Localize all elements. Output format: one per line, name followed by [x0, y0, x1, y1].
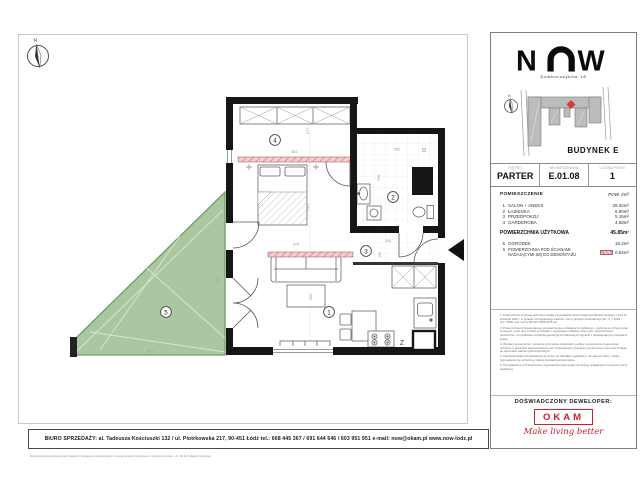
kitchen-z-label: Z [400, 340, 405, 347]
info-col-floor: PIĘTRO PARTER [491, 164, 539, 186]
garden-french-door [233, 278, 258, 328]
kitchen-cabinet [392, 266, 436, 288]
radiator [280, 341, 330, 347]
badge-ogrodek: 5 [164, 309, 168, 316]
floor-plan: N 497 554 [0, 0, 490, 480]
legal-item: 3. Wymiary pomieszczeń, tolerancje przyr… [500, 343, 628, 354]
now-logo-subtitle: Dowborczyków 18 [491, 74, 636, 79]
sofa [271, 256, 341, 282]
dim-hall-depth: 196 [378, 252, 382, 258]
site-compass-n: N [508, 94, 512, 98]
now-logo-n: N [516, 45, 537, 73]
developer-label: DOŚWIADCZONY DEWELOPER: [491, 399, 636, 405]
apartment-info-table: PIĘTRO PARTER NR MIESZKANIA E.01.08 LICZ… [491, 163, 636, 187]
bath-sink [357, 184, 370, 204]
site-map: N BUDYNEK E [491, 84, 638, 162]
floor-value: PARTER [491, 171, 539, 181]
window-bottom [273, 346, 333, 356]
dim-hall-width: 265 [385, 239, 391, 243]
apartment-number-value: E.01.08 [540, 171, 587, 181]
dim-salon-depth: 306 [308, 293, 313, 300]
legal-item: 1. Powierzchnia użytkowa obliczona zosta… [500, 314, 628, 325]
garden-area: 497 554 [70, 192, 225, 357]
floor-label: PIĘTRO [491, 166, 539, 170]
kitchen-sink [414, 298, 436, 328]
badge-garderoba: 4 [273, 137, 277, 144]
sales-office-bar: BIURO SPRZEDAŻY: al. Tadeusza Kościuszki… [28, 429, 489, 449]
rooms-table: POMIESZCZENIE POW. /m²/ 1SALON + ANEKS 2… [500, 192, 629, 257]
bed [258, 165, 307, 225]
dim-bath-width: 252 [394, 147, 401, 152]
badge-lazienka: 2 [391, 194, 395, 201]
apartment-card-page: N 497 554 [0, 0, 640, 480]
stove [368, 331, 394, 347]
dim-salon-width: 378 [293, 242, 300, 247]
developer-block: DOŚWIADCZONY DEWELOPER: OKAM Make living… [491, 399, 636, 437]
rooms-header-name: POMIESZCZENIE [500, 192, 543, 197]
dim-garderoba-depth: 177 [305, 127, 310, 134]
garderoba-door [326, 162, 350, 186]
entrance-arrow-icon [448, 239, 464, 261]
usable-area-total: POWIERZCHNIA UŻYTKOWA 45.85m² [500, 230, 629, 236]
okam-logo: OKAM [534, 409, 593, 425]
divider [491, 395, 636, 396]
now-logo-w: W [577, 45, 605, 73]
rooms-header-area: POW. /m²/ [608, 192, 629, 197]
building-footprint [528, 97, 601, 146]
room-count-value: 1 [589, 171, 636, 181]
wardrobe [240, 107, 350, 124]
coffee-table [287, 285, 325, 307]
legal-item: 4. Aranżacja lokalu przedstawiona na rzu… [500, 355, 628, 362]
room-count-label: LICZBA POKOI [589, 166, 636, 170]
rooms-table-header: POMIESZCZENIE POW. /m²/ [500, 192, 629, 197]
now-logo-arch-icon [550, 49, 571, 71]
compass-n-label: N [33, 37, 38, 43]
okam-tagline: Make living better [491, 427, 636, 437]
dim-bed-depth: 297 [305, 203, 310, 210]
demolishable-wall-swatch [600, 250, 613, 255]
bedroom-door [233, 222, 259, 248]
legal-item: 2. Powierzchnia użytkowa danego pomieszc… [500, 327, 628, 342]
washing-machine [367, 206, 381, 220]
info-panel: N W Dowborczyków 18 [490, 32, 637, 449]
shaft [412, 167, 433, 195]
dim-garden-width: 497 [147, 349, 154, 354]
apartment-number-label: NR MIESZKANIA [540, 166, 587, 170]
badge-przedpokoj: 3 [364, 248, 368, 255]
site-compass-icon: N [503, 93, 519, 114]
garden-wall-post [70, 337, 77, 357]
compass-icon: N [25, 36, 50, 69]
badge-salon: 1 [327, 309, 331, 316]
dim-garden-depth: 554 [215, 276, 220, 283]
plan-border [19, 35, 468, 424]
legal-item: 5. Przedstawione rozmieszczenie i wyposa… [500, 364, 628, 371]
room-row: 4GARDEROBA 4.58m² [500, 220, 629, 226]
demolishable-walls-row: 6POWIERZCHNIA POD ŚCIANAMI NADAJĄCYMI SI… [500, 248, 629, 257]
building-label: BUDYNEK E [567, 146, 619, 155]
info-col-number: NR MIESZKANIA E.01.08 [539, 164, 587, 186]
divider [491, 309, 636, 310]
window-left [225, 150, 234, 163]
legal-disclaimer: Niniejsza karta mieszkania ma charakter … [30, 455, 460, 458]
legal-notes: 1. Powierzchnia użytkowa obliczona zosta… [500, 314, 628, 373]
dim-garderoba-width: 384 [291, 149, 298, 154]
info-col-rooms: LICZBA POKOI 1 [588, 164, 636, 186]
now-logo-block: N W Dowborczyków 18 [491, 43, 636, 79]
kitchen-shaft [413, 331, 435, 350]
now-logo: N W [516, 43, 612, 73]
dim-bath-depth: 296 [376, 174, 381, 181]
